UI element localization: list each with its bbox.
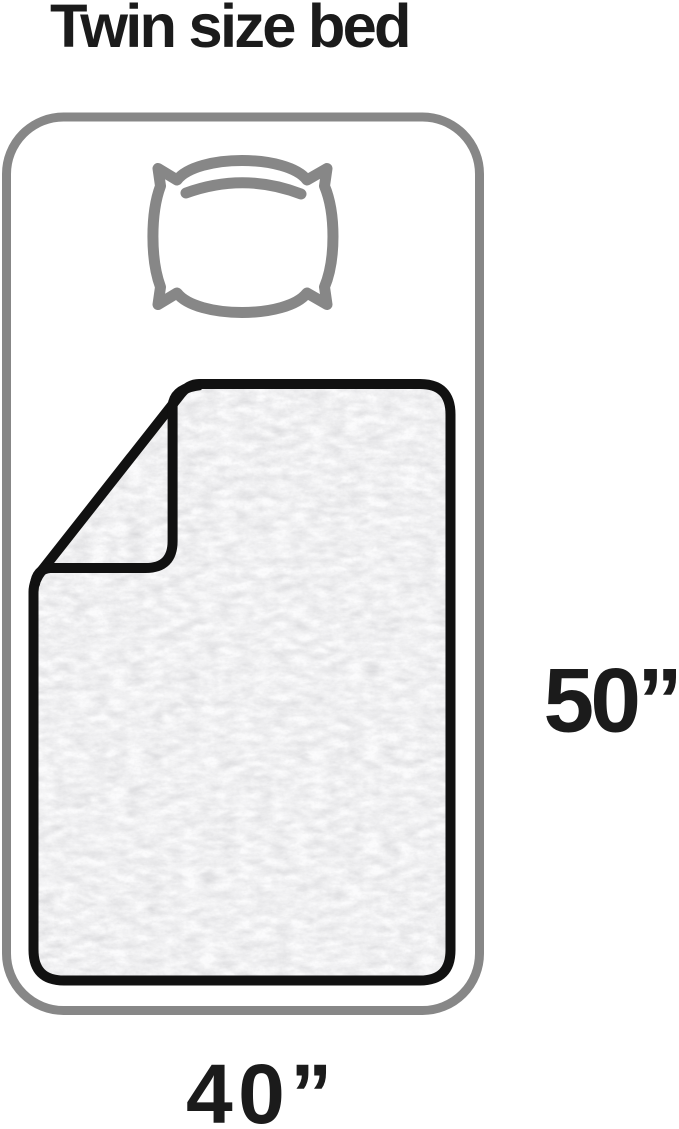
svg-text:Twin size bed: Twin size bed: [50, 0, 409, 61]
svg-text:40”: 40”: [186, 1047, 338, 1129]
svg-text:50”: 50”: [544, 651, 679, 752]
